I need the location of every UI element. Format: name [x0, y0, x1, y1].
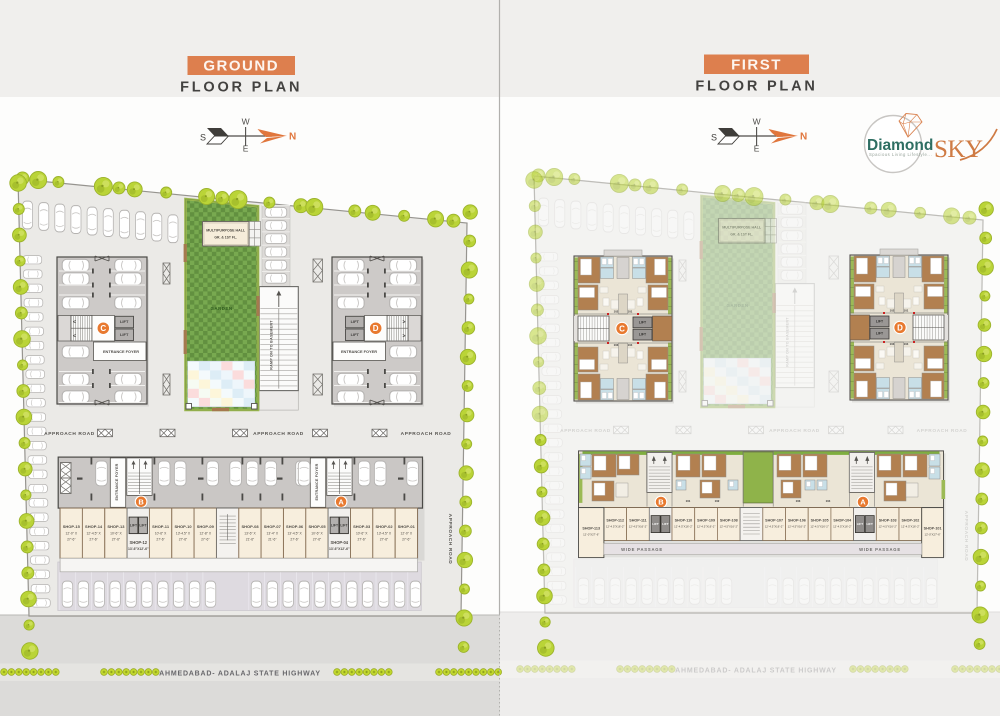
svg-text:MULTIPURPOSE HALL: MULTIPURPOSE HALL [722, 226, 762, 230]
svg-text:ENTRANCE FOYER: ENTRANCE FOYER [103, 349, 139, 354]
svg-text:MULTIPURPOSE HALL: MULTIPURPOSE HALL [206, 229, 246, 233]
svg-text:27'-6": 27'-6" [112, 538, 121, 542]
svg-text:LIFT: LIFT [120, 319, 129, 324]
svg-text:12'-8" X: 12'-8" X [200, 532, 212, 536]
svg-text:27'-6": 27'-6" [67, 538, 76, 542]
svg-text:101: 101 [628, 310, 633, 314]
svg-text:C: C [619, 324, 625, 333]
svg-text:27'-6": 27'-6" [357, 538, 366, 542]
svg-text:Spacious Living Lifestyle...: Spacious Living Lifestyle... [869, 152, 932, 157]
svg-text:LIFT: LIFT [340, 524, 348, 528]
svg-text:10'-6" X: 10'-6" X [311, 532, 323, 536]
svg-text:GR. & 1ST FL.: GR. & 1ST FL. [730, 233, 753, 237]
svg-text:GARDEN: GARDEN [726, 303, 748, 308]
svg-text:ENTRANCE FOYER: ENTRANCE FOYER [341, 349, 377, 354]
svg-text:D: D [373, 324, 379, 333]
svg-text:A: A [338, 498, 344, 507]
svg-text:LIFT: LIFT [652, 522, 658, 526]
svg-text:LIFT: LIFT [351, 319, 360, 324]
svg-text:12'-4.5"X16'-2": 12'-4.5"X16'-2" [606, 525, 624, 529]
svg-text:SHOP-110: SHOP-110 [675, 519, 693, 523]
svg-text:<: < [73, 334, 76, 340]
svg-text:SHOP-103: SHOP-103 [879, 519, 897, 523]
svg-text:12'-0" X: 12'-0" X [66, 532, 78, 536]
svg-text:12'-4.5"X16'-2": 12'-4.5"X16'-2" [697, 525, 715, 529]
svg-text:GROUND: GROUND [203, 58, 279, 75]
svg-text:12'-4.5"X16'-2": 12'-4.5"X16'-2" [810, 525, 828, 529]
svg-text:SHOP-105: SHOP-105 [811, 519, 829, 523]
svg-text:SHOP-11: SHOP-11 [152, 524, 170, 529]
svg-text:ENTRANCE FOYER: ENTRANCE FOYER [115, 463, 119, 500]
svg-text:E: E [754, 144, 760, 154]
svg-text:12'-0"X27'-6": 12'-0"X27'-6" [925, 533, 941, 537]
svg-text:13'-6"X12'-6": 13'-6"X12'-6" [128, 547, 149, 551]
svg-text:27'-6": 27'-6" [179, 538, 188, 542]
svg-text:LIFT: LIFT [867, 522, 873, 526]
svg-text:SHOP-113: SHOP-113 [582, 527, 600, 531]
svg-text:W: W [753, 117, 761, 127]
svg-text:102: 102 [614, 310, 619, 314]
svg-text:FLOOR PLAN: FLOOR PLAN [695, 79, 817, 95]
svg-text:LIFT: LIFT [876, 319, 884, 323]
svg-text:27'-6": 27'-6" [156, 538, 165, 542]
svg-text:LIFT: LIFT [857, 522, 863, 526]
svg-text:102: 102 [890, 309, 895, 313]
svg-text:21'-6": 21'-6" [268, 538, 277, 542]
svg-text:12'-4.5"X16'-2": 12'-4.5"X16'-2" [674, 525, 692, 529]
svg-text:12'-0" X: 12'-0" X [401, 532, 413, 536]
svg-text:104: 104 [826, 499, 831, 503]
svg-text:SKY: SKY [934, 136, 983, 163]
svg-text:S: S [711, 133, 717, 143]
svg-text:SHOP-101: SHOP-101 [924, 527, 942, 531]
svg-text:13'-4.5" X: 13'-4.5" X [287, 532, 302, 536]
svg-text:>: > [403, 334, 406, 340]
svg-text:A: A [860, 498, 866, 507]
svg-text:FLOOR PLAN: FLOOR PLAN [180, 80, 302, 96]
svg-text:LIFT: LIFT [331, 524, 339, 528]
svg-text:27'-6": 27'-6" [201, 538, 210, 542]
svg-text:12'-4.5"X16'-2": 12'-4.5"X16'-2" [765, 525, 783, 529]
svg-text:LIFT: LIFT [639, 320, 647, 324]
svg-text:APPROACH ROAD: APPROACH ROAD [447, 514, 453, 565]
svg-text:SHOP-107: SHOP-107 [765, 519, 783, 523]
svg-text:C: C [100, 324, 106, 333]
svg-text:SHOP-15: SHOP-15 [63, 524, 81, 529]
svg-text:SHOP-109: SHOP-109 [697, 519, 715, 523]
svg-text:WIDE PASSAGE: WIDE PASSAGE [621, 547, 663, 552]
svg-text:SHOP-111: SHOP-111 [629, 519, 646, 523]
svg-text:27'-6": 27'-6" [313, 538, 322, 542]
svg-text:104: 104 [904, 342, 909, 346]
svg-text:N: N [289, 132, 296, 143]
svg-text:>: > [403, 320, 406, 326]
svg-text:27'-6": 27'-6" [290, 538, 299, 542]
svg-text:SHOP-07: SHOP-07 [264, 524, 282, 529]
svg-text:LIFT: LIFT [120, 332, 129, 337]
svg-text:FIRST: FIRST [731, 57, 782, 74]
svg-text:N: N [800, 132, 807, 143]
svg-text:13'-6" X: 13'-6" X [244, 532, 256, 536]
svg-text:12'-4.5"X16'-2": 12'-4.5"X16'-2" [878, 525, 896, 529]
svg-text:ENTRANCE FOYER: ENTRANCE FOYER [315, 463, 319, 500]
svg-text:13'-6"X12'-6": 13'-6"X12'-6" [329, 547, 350, 551]
svg-text:LIFT: LIFT [639, 333, 647, 337]
svg-text:WIDE PASSAGE: WIDE PASSAGE [859, 547, 901, 552]
svg-text:LIFT: LIFT [876, 332, 884, 336]
svg-text:12'-4.5"X16'-2": 12'-4.5"X16'-2" [629, 525, 647, 529]
svg-text:13'-4.5" X: 13'-4.5" X [377, 532, 392, 536]
svg-text:SHOP-09: SHOP-09 [197, 524, 215, 529]
svg-text:10'-6" X: 10'-6" X [155, 532, 167, 536]
svg-text:SHOP-12: SHOP-12 [130, 540, 148, 545]
svg-text:SHOP-10: SHOP-10 [174, 524, 192, 529]
svg-text:102: 102 [715, 499, 720, 503]
svg-text:LIFT: LIFT [139, 524, 147, 528]
svg-text:12'-4.5"X16'-2": 12'-4.5"X16'-2" [901, 525, 919, 529]
svg-text:12'-4.5"X16'-2": 12'-4.5"X16'-2" [788, 525, 806, 529]
svg-text:103: 103 [614, 343, 619, 347]
svg-text:W: W [242, 117, 250, 127]
svg-text:27'-6": 27'-6" [380, 538, 389, 542]
svg-text:SHOP-14: SHOP-14 [85, 524, 103, 529]
svg-text:27'-6": 27'-6" [89, 538, 98, 542]
svg-text:SHOP-05: SHOP-05 [308, 524, 326, 529]
svg-text:B: B [138, 498, 144, 507]
svg-text:103: 103 [890, 342, 895, 346]
svg-text:SHOP-04: SHOP-04 [331, 540, 349, 545]
svg-text:LIFT: LIFT [130, 524, 138, 528]
svg-text:GARDEN: GARDEN [210, 306, 232, 311]
svg-text:101: 101 [904, 309, 909, 313]
svg-text:SHOP-104: SHOP-104 [833, 519, 852, 523]
svg-text:103: 103 [796, 499, 801, 503]
svg-text:21'-6": 21'-6" [246, 538, 255, 542]
svg-text:SHOP-112: SHOP-112 [606, 519, 624, 523]
svg-text:LIFT: LIFT [351, 332, 360, 337]
svg-text:GR. & 1ST FL.: GR. & 1ST FL. [214, 236, 237, 240]
svg-text:SHOP-13: SHOP-13 [107, 524, 125, 529]
svg-text:SHOP-01: SHOP-01 [398, 524, 416, 529]
svg-text:SHOP-02: SHOP-02 [375, 524, 393, 529]
svg-text:D: D [897, 323, 903, 332]
svg-text:AHMEDABAD- ADALAJ STATE HIGHWA: AHMEDABAD- ADALAJ STATE HIGHWAY [159, 671, 321, 678]
svg-text:13'-4" X: 13'-4" X [267, 532, 279, 536]
svg-text:13'-4.5" X: 13'-4.5" X [176, 532, 191, 536]
svg-text:12'-4.5"X16'-2": 12'-4.5"X16'-2" [720, 525, 738, 529]
svg-text:SHOP-108: SHOP-108 [720, 519, 738, 523]
svg-text:12'-4.5"X16'-2": 12'-4.5"X16'-2" [833, 525, 851, 529]
svg-text:SHOP-06: SHOP-06 [286, 524, 304, 529]
svg-text:APPROACH ROAD: APPROACH ROAD [401, 431, 452, 437]
svg-text:B: B [658, 498, 664, 507]
svg-text:APPROACH ROAD: APPROACH ROAD [253, 431, 304, 437]
svg-text:SHOP-08: SHOP-08 [241, 524, 259, 529]
svg-text:SHOP-102: SHOP-102 [901, 519, 919, 523]
svg-text:12'-4.5" X: 12'-4.5" X [86, 532, 101, 536]
svg-text:10'-6" X: 10'-6" X [356, 532, 368, 536]
svg-text:SHOP-03: SHOP-03 [353, 524, 371, 529]
svg-text:27'-6": 27'-6" [402, 538, 411, 542]
svg-text:10'-6" X: 10'-6" X [110, 532, 122, 536]
svg-text:<: < [73, 320, 76, 326]
svg-text:RAMP DN TO BASEMENT: RAMP DN TO BASEMENT [270, 320, 274, 370]
svg-text:AHMEDABAD- ADALAJ STATE HIGHWA: AHMEDABAD- ADALAJ STATE HIGHWAY [675, 668, 837, 675]
svg-text:101: 101 [686, 499, 691, 503]
svg-text:LIFT: LIFT [662, 522, 668, 526]
svg-text:APPROACH ROAD: APPROACH ROAD [44, 431, 95, 437]
svg-text:E: E [243, 144, 249, 154]
svg-text:SHOP-106: SHOP-106 [788, 519, 806, 523]
svg-text:104: 104 [628, 343, 633, 347]
svg-text:S: S [200, 133, 206, 143]
svg-text:12'-0"X27'-6": 12'-0"X27'-6" [583, 533, 599, 537]
